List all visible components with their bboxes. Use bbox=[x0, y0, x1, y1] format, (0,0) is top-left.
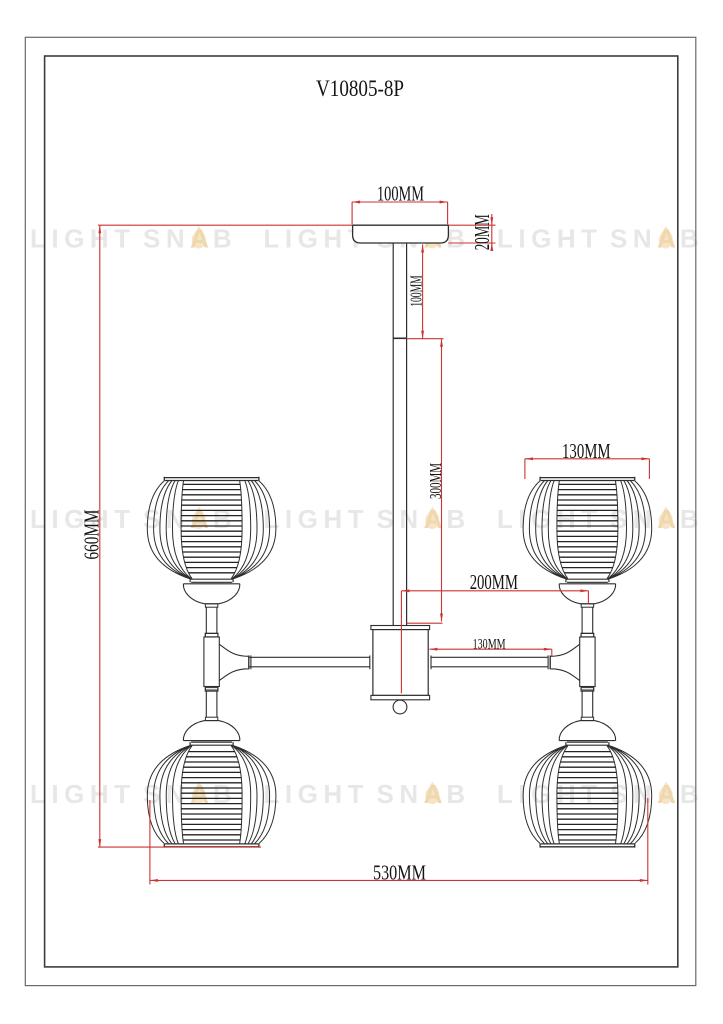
svg-text:130MM: 130MM bbox=[473, 636, 506, 652]
svg-text:530MM: 530MM bbox=[373, 860, 426, 884]
svg-text:130MM: 130MM bbox=[562, 439, 611, 463]
svg-text:A: A bbox=[190, 779, 214, 809]
svg-text:V10805-8P: V10805-8P bbox=[316, 76, 404, 102]
svg-text:100MM: 100MM bbox=[377, 182, 424, 206]
svg-text:20MM: 20MM bbox=[470, 214, 494, 250]
svg-text:B: B bbox=[213, 224, 237, 254]
svg-text:B: B bbox=[680, 504, 704, 534]
svg-text:SN: SN bbox=[143, 224, 190, 254]
svg-text:SN: SN bbox=[377, 779, 424, 809]
svg-text:SN: SN bbox=[377, 504, 424, 534]
svg-text:LIGHT: LIGHT bbox=[497, 504, 603, 534]
svg-text:LIGHT: LIGHT bbox=[30, 779, 136, 809]
svg-text:660MM: 660MM bbox=[80, 509, 104, 559]
svg-text:B: B bbox=[446, 504, 470, 534]
svg-text:A: A bbox=[190, 504, 214, 534]
svg-text:B: B bbox=[680, 224, 704, 254]
svg-text:100MM: 100MM bbox=[406, 275, 425, 307]
svg-text:LIGHT: LIGHT bbox=[30, 224, 136, 254]
svg-text:300MM: 300MM bbox=[426, 463, 445, 499]
svg-text:B: B bbox=[446, 224, 470, 254]
svg-text:LIGHT: LIGHT bbox=[264, 504, 370, 534]
svg-text:LIGHT: LIGHT bbox=[497, 779, 603, 809]
svg-text:LIGHT: LIGHT bbox=[497, 224, 603, 254]
svg-text:B: B bbox=[213, 779, 237, 809]
svg-text:B: B bbox=[446, 779, 470, 809]
svg-text:A: A bbox=[424, 779, 448, 809]
svg-text:B: B bbox=[680, 779, 704, 809]
svg-text:200MM: 200MM bbox=[470, 570, 519, 594]
svg-text:B: B bbox=[213, 504, 237, 534]
svg-text:LIGHT: LIGHT bbox=[264, 779, 370, 809]
svg-text:A: A bbox=[190, 224, 214, 254]
svg-text:A: A bbox=[424, 504, 448, 534]
svg-text:SN: SN bbox=[610, 224, 657, 254]
